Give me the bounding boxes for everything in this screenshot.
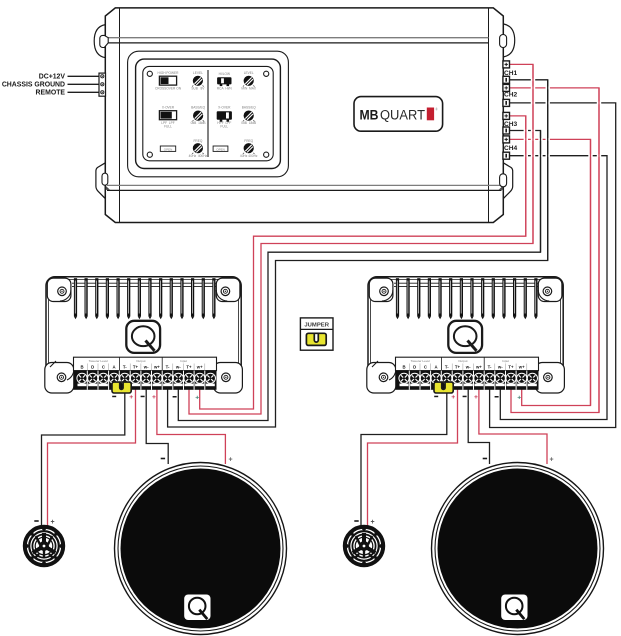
svg-text:40Hz 400Hz: 40Hz 400Hz [189, 154, 208, 158]
svg-text:CH2: CH2 [504, 92, 518, 99]
svg-text:REMOTE: REMOTE [36, 90, 66, 97]
svg-text:CH4: CH4 [504, 145, 518, 152]
svg-text:0dB 18dB: 0dB 18dB [241, 121, 256, 125]
svg-text:T+: T+ [186, 365, 192, 370]
svg-text:LEVEL: LEVEL [244, 71, 254, 75]
svg-text:+: + [129, 394, 133, 401]
svg-text:+: + [228, 456, 232, 463]
svg-text:HIGH POWER: HIGH POWER [158, 71, 180, 75]
svg-text:A: A [113, 365, 116, 370]
svg-text:+: + [370, 519, 374, 526]
svg-text:RCA HI/N: RCA HI/N [217, 87, 233, 91]
svg-text:T-: T- [166, 365, 170, 370]
svg-text:+: + [549, 456, 553, 463]
svg-text:BASS/EQ: BASS/EQ [191, 106, 206, 110]
svg-text:MIN MAX: MIN MAX [241, 87, 256, 91]
svg-text:X-OVER: X-OVER [162, 106, 175, 110]
svg-text:Output: Output [136, 359, 145, 363]
svg-text:D: D [91, 365, 94, 370]
svg-text:0dB 18dB: 0dB 18dB [191, 121, 206, 125]
svg-text:Tweeter Level: Tweeter Level [89, 359, 109, 363]
svg-text:C: C [102, 365, 105, 370]
svg-text:JUMPER: JUMPER [304, 323, 329, 329]
svg-text:LEVEL: LEVEL [193, 71, 203, 75]
svg-text:CHASSIS GROUND: CHASSIS GROUND [2, 82, 65, 89]
svg-text:MB: MB [360, 107, 379, 123]
svg-text:B: B [80, 365, 83, 370]
svg-text:Input: Input [180, 359, 187, 363]
svg-text:X-OVER: X-OVER [218, 106, 231, 110]
svg-text:BASS/EQ: BASS/EQ [242, 106, 257, 110]
svg-text:CH1: CH1 [504, 70, 518, 77]
svg-text:w+: w+ [196, 365, 203, 370]
svg-text:OPEN: OPEN [216, 147, 225, 151]
svg-text:QUART: QUART [380, 107, 425, 123]
svg-text:FULL: FULL [164, 125, 172, 129]
svg-text:DC+12V: DC+12V [39, 74, 66, 81]
svg-text:+: + [195, 394, 199, 401]
svg-text:FREQ: FREQ [193, 139, 202, 143]
svg-text:T-: T- [123, 365, 127, 370]
svg-text:OPEN: OPEN [164, 147, 173, 151]
svg-text:CROSSOVER ON: CROSSOVER ON [155, 87, 182, 91]
svg-text:w-: w- [175, 365, 181, 370]
svg-text:T+: T+ [133, 365, 139, 370]
svg-text:CH3: CH3 [504, 121, 518, 128]
svg-text:FREQ: FREQ [244, 139, 253, 143]
svg-text:40Hz 400Hz: 40Hz 400Hz [240, 154, 258, 158]
svg-text:+: + [152, 394, 156, 401]
svg-text:HI/LOW: HI/LOW [219, 72, 230, 76]
svg-text:+: + [50, 519, 54, 526]
svg-text:SUB 8V: SUB 8V [191, 87, 205, 91]
svg-text:w+: w+ [153, 365, 160, 370]
svg-text:FULL: FULL [220, 125, 228, 129]
svg-text:w-: w- [143, 365, 149, 370]
